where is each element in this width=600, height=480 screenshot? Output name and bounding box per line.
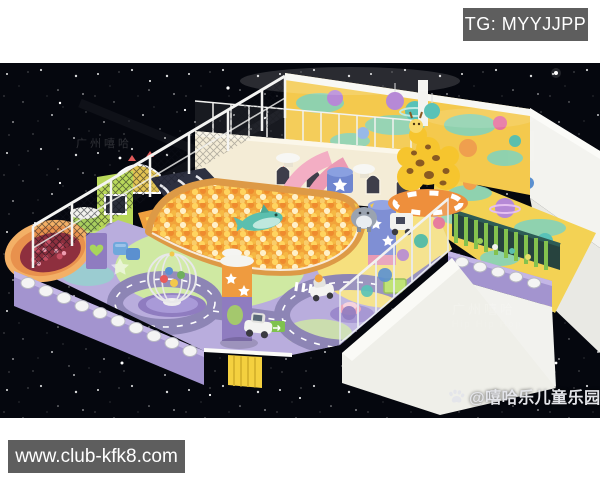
playground-photo: 广州嘻哈 广州嘻哈 Hip Hip Hop @嘻哈乐儿童乐园 [0,63,600,418]
playground-scene [0,63,600,418]
website-badge: www.club-kfk8.com [8,440,185,473]
star-cylinder-stool [327,167,353,193]
faint-watermark: 广州嘻哈 [76,135,132,151]
telegram-badge: TG: MYYJJPP [463,8,588,41]
heart-box [86,233,107,269]
brand-watermark-text: @嘻哈乐儿童乐园 [469,384,600,408]
faint-watermark-2-line1: 广州嘻哈 [452,302,516,317]
paw-icon [448,389,465,404]
faint-watermark-2: 广州嘻哈 Hip Hip Hop [452,299,523,329]
faint-watermark-2-line2: Hip Hip Hop [452,319,523,329]
page: 广州嘻哈 广州嘻哈 Hip Hip Hop @嘻哈乐儿童乐园 TG: MYYJJ… [0,0,600,480]
brand-watermark: @嘻哈乐儿童乐园 [448,384,600,408]
